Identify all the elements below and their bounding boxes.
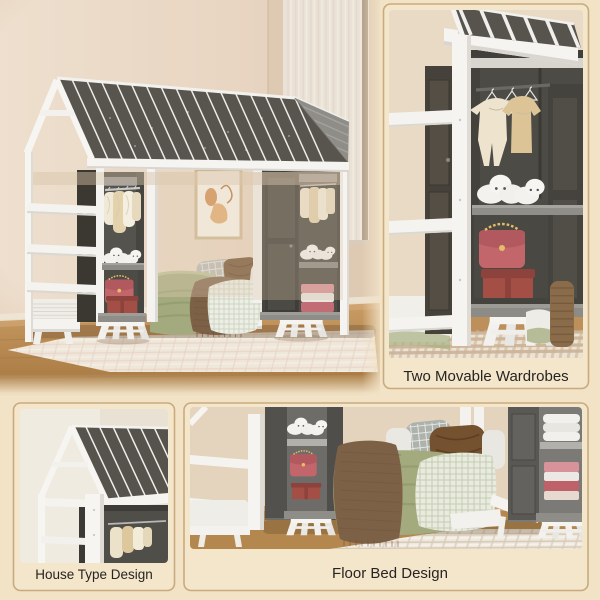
svg-text:House Type Design: House Type Design bbox=[35, 567, 153, 582]
svg-text:Two Movable Wardrobes: Two Movable Wardrobes bbox=[403, 368, 568, 385]
svg-text:Floor Bed Design: Floor Bed Design bbox=[332, 565, 448, 582]
